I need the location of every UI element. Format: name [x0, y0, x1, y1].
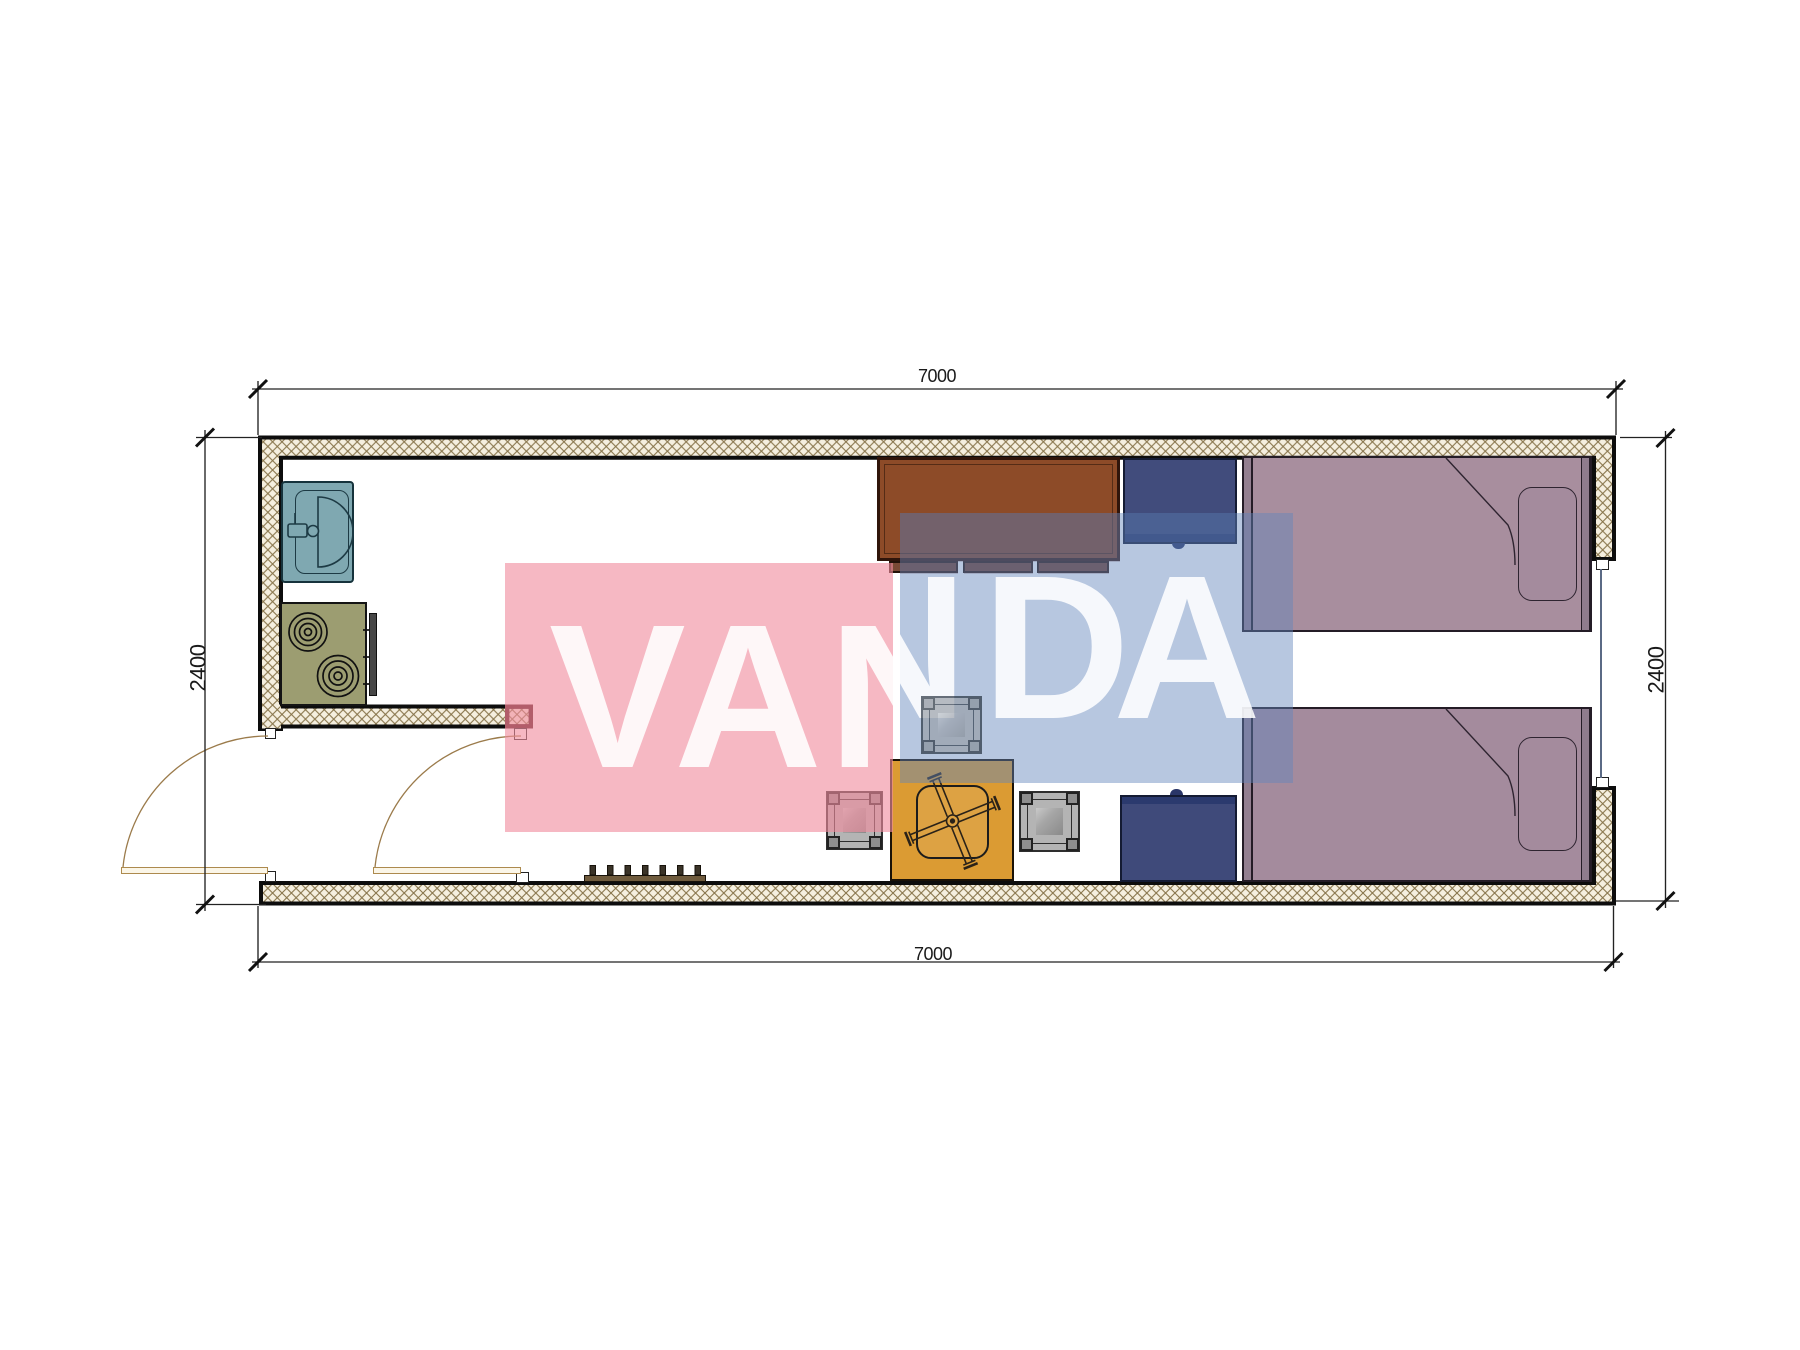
svg-text:A: A [674, 582, 822, 811]
svg-text:D: D [982, 533, 1130, 762]
svg-text:A: A [1113, 533, 1261, 762]
svg-text:V: V [549, 582, 686, 811]
